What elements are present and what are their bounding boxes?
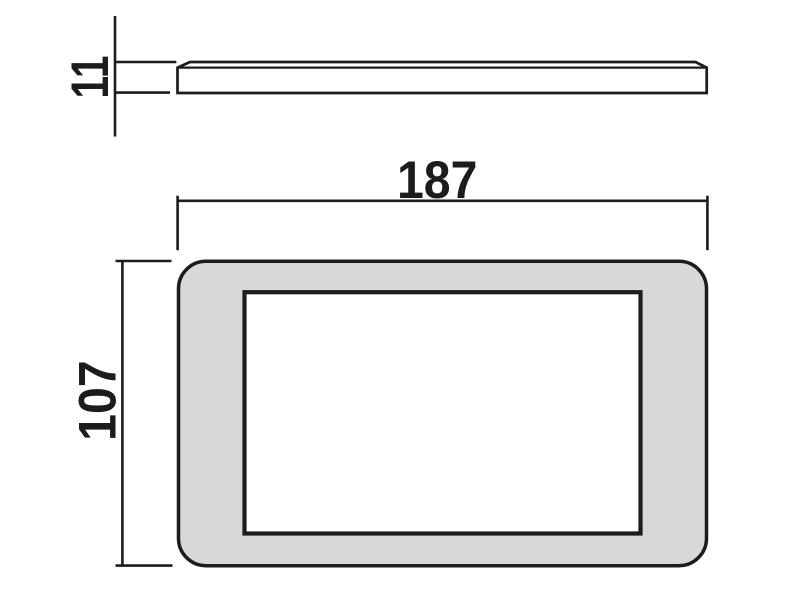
svg-text:107: 107 <box>67 360 127 440</box>
svg-text:187: 187 <box>397 150 477 210</box>
svg-text:11: 11 <box>61 56 121 99</box>
